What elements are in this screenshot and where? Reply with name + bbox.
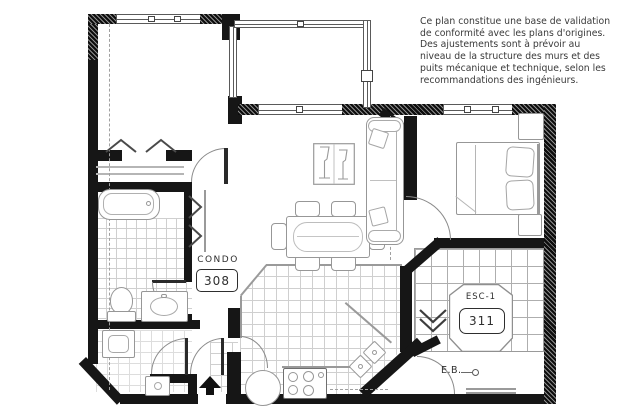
stair-landing-line xyxy=(466,388,516,390)
annotation-line: Ce plan constitue une base de validation xyxy=(420,16,635,28)
bifold-chevron-icon xyxy=(104,138,182,154)
stove-burner xyxy=(303,371,314,382)
headboard-line xyxy=(537,144,539,215)
laundry-sink-drain xyxy=(154,382,162,390)
blanket-line xyxy=(475,145,476,214)
window xyxy=(443,104,514,115)
stair-label-title: ESC-1 xyxy=(449,292,513,302)
sofa xyxy=(366,117,404,245)
window-mullion xyxy=(492,106,499,113)
dining-table-inlay-line xyxy=(297,236,359,237)
wall xyxy=(188,374,197,398)
sink-bowl xyxy=(150,297,178,316)
laundry-door-leaf xyxy=(185,338,188,375)
wall xyxy=(88,14,118,24)
annotation-line: recommandations des ingénieurs. xyxy=(420,75,635,87)
wall xyxy=(184,254,192,282)
kitchen-edge-line xyxy=(240,296,242,338)
washer xyxy=(102,330,135,358)
sink-vanity xyxy=(141,291,188,322)
window-mullion xyxy=(296,106,303,113)
sofa-pillow xyxy=(368,206,389,227)
wall xyxy=(88,60,98,364)
pillow xyxy=(505,179,535,210)
counter-dashed-line xyxy=(330,389,388,390)
nightstand xyxy=(518,113,544,140)
eb-marker xyxy=(472,369,479,376)
bathtub xyxy=(98,189,160,220)
washer-lid xyxy=(108,335,129,353)
sink-drain xyxy=(357,363,364,370)
balcony-window xyxy=(229,26,237,98)
glass-cabinet xyxy=(313,143,355,185)
window-mullion xyxy=(464,106,471,113)
wall xyxy=(238,104,260,115)
bathtub-drain xyxy=(146,201,151,206)
toilet-tank xyxy=(107,311,136,322)
stair-landing-line xyxy=(466,392,516,394)
stair-number-badge: 311 xyxy=(459,308,505,334)
sofa-pillow xyxy=(368,128,389,149)
balcony-window xyxy=(363,20,371,108)
wall xyxy=(227,352,241,398)
bedroom1-door-leaf xyxy=(224,148,228,184)
arrow-up-icon xyxy=(199,376,221,395)
stair-number: 311 xyxy=(469,314,495,328)
stove-burner xyxy=(318,372,324,378)
bifold-chevron-icon xyxy=(186,193,204,253)
nightstand xyxy=(518,214,542,236)
closet-front-line xyxy=(204,190,206,252)
round-table xyxy=(245,370,281,406)
pillow xyxy=(505,146,535,178)
annotation-line: puits mécanique et technique, selon les xyxy=(420,63,635,75)
annotation-note: Ce plan constitue une base de validation… xyxy=(420,16,635,86)
window-mullion xyxy=(361,70,373,82)
arrow-head xyxy=(199,376,221,388)
eb-leader-line xyxy=(461,372,472,373)
entrance-door-arc xyxy=(190,338,223,374)
dining-table-inlay xyxy=(293,222,363,252)
laundry-sink xyxy=(145,376,170,396)
dining-table xyxy=(286,216,370,258)
bedroom1-door-arc xyxy=(191,148,226,182)
wall xyxy=(400,266,412,352)
entrance-door-leaf xyxy=(221,338,224,375)
chevron-down-icon xyxy=(416,306,450,334)
sink-drain xyxy=(371,349,378,356)
wall xyxy=(544,104,556,404)
annotation-line: niveau de la structure des murs et des xyxy=(420,51,635,63)
toilet xyxy=(110,287,133,314)
stove xyxy=(283,368,327,399)
chair xyxy=(295,201,320,217)
sofa-cushion-line xyxy=(370,180,396,181)
annotation-line: de conformité avec les plans d'origines. xyxy=(420,28,635,40)
chair xyxy=(271,223,287,250)
floor-plan: Ce plan constitue une base de validation… xyxy=(0,0,640,409)
unit-label-title: CONDO xyxy=(193,255,243,265)
window-mullion xyxy=(148,16,155,22)
unit-number-badge: 308 xyxy=(196,269,238,292)
window xyxy=(116,14,202,24)
stove-burner xyxy=(288,385,298,395)
eb-label: E.B. xyxy=(441,365,462,376)
stove-burner xyxy=(288,372,298,382)
bedroom2-door-arc xyxy=(406,196,451,240)
unit-number: 308 xyxy=(204,274,230,288)
bed xyxy=(456,142,540,215)
window-mullion xyxy=(174,16,181,22)
stove-burner xyxy=(303,385,314,396)
arrow-stem xyxy=(206,388,214,395)
chair xyxy=(331,201,356,217)
annotation-line: Des ajustements sont à prévoir au xyxy=(420,39,635,51)
wall xyxy=(342,104,444,115)
sofa-armrest xyxy=(368,230,401,242)
wall xyxy=(404,116,417,200)
window-mullion xyxy=(297,21,304,27)
faucet xyxy=(161,294,167,298)
sofa-back-line xyxy=(396,122,397,242)
